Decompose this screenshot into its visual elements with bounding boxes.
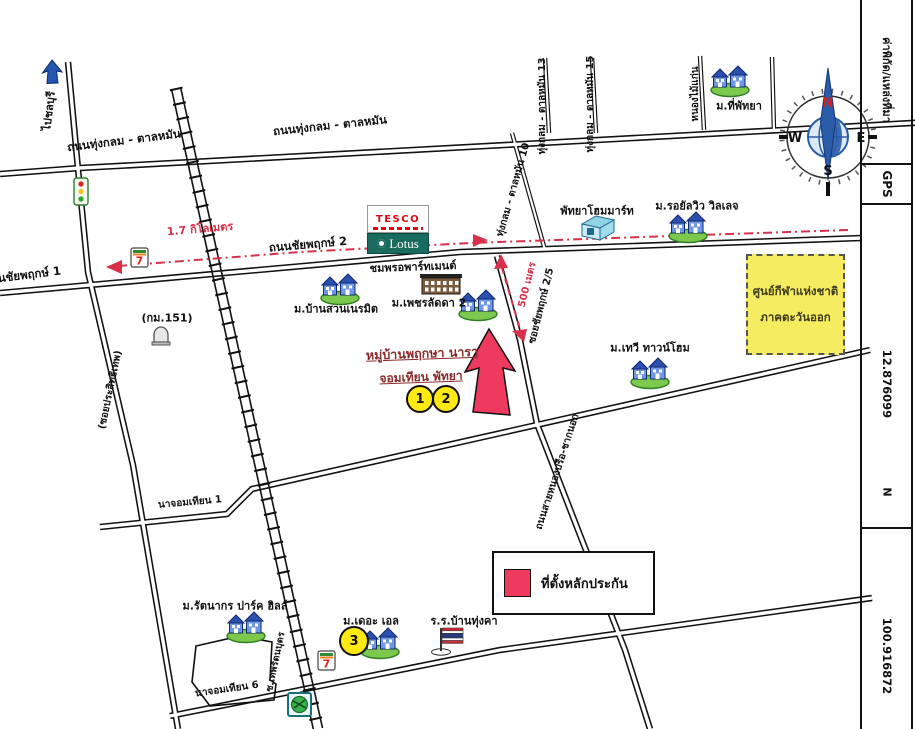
lotus-flower-icon <box>377 239 386 248</box>
tesco-label: TESCO <box>376 214 420 225</box>
compass-south-label: S <box>823 164 832 179</box>
road-label-nong-mai-kaen: หนองไม้แก่น <box>691 66 701 121</box>
road-label-soi-13: ทุ่งกลม - ตาลหมัน 13 <box>538 57 548 154</box>
sport-center-area: ศูนย์กีฬาแห่งชาติ ภาคตะวันออก <box>746 254 845 355</box>
tesco-dashes <box>373 227 423 230</box>
place-label-chomporn-apartment: ชมพรอพาร์ทเมนต์ <box>369 260 456 274</box>
warehouse-icon <box>582 216 614 240</box>
village-houses-icon <box>227 612 265 643</box>
legend-marker-swatch <box>504 569 531 597</box>
market-icon <box>288 693 311 716</box>
compass-west-label: W <box>788 131 802 146</box>
map-page: 7 <box>0 0 915 729</box>
sidebar-latitude: 12.876099 <box>880 350 894 418</box>
seven-eleven-icon <box>131 248 148 268</box>
thai-flag-icon <box>432 628 464 655</box>
monument-icon <box>152 327 170 345</box>
sport-center-line2: ภาคตะวันออก <box>760 309 830 327</box>
marker-circle-2: 2 <box>432 385 460 413</box>
compass-north-label: N <box>823 96 834 111</box>
village-houses-icon <box>669 212 707 243</box>
village-houses-icon <box>631 358 669 389</box>
direction-arrow-chonburi-icon <box>43 60 63 84</box>
route-dashes <box>106 230 848 342</box>
road-label-soi-15: ทุ่งกลม - ตาลหมัน 15 <box>586 55 596 152</box>
sidebar-longitude: 100.916872 <box>880 618 894 694</box>
place-label-royal-view: ม.รอยัลวิว วิลเลจ <box>655 201 738 212</box>
apartment-icon <box>420 274 462 294</box>
place-label-baan-suan-neramit: ม.บ้านสวนเนรมิต <box>294 304 378 315</box>
coordinates-sidebar: ค่าพิกัด/แหล่งที่มา GPS 12.876099 N 100.… <box>860 0 913 729</box>
place-label-rattanakorn-park-hill: ม.รัตนากร ปาร์ค ฮิลล์ <box>182 601 287 612</box>
sidebar-source-label: ค่าพิกัด/แหล่งที่มา <box>878 37 896 123</box>
tesco-sign-bottom: Lotus <box>367 233 429 254</box>
place-label-tavee-townhome: ม.เทวี ทาวน์โฮม <box>610 343 689 354</box>
traffic-light-icon <box>74 178 88 205</box>
place-label-tee-pattaya: ม.ที่พัทยา <box>716 101 762 112</box>
village-houses-icon <box>711 66 749 97</box>
tesco-lotus-sign: TESCO Lotus <box>367 205 429 254</box>
road-label-km-151: (กม.151) <box>141 313 192 324</box>
lotus-label: Lotus <box>389 236 419 252</box>
place-label-the-l: ม.เดอะ เอล <box>343 616 399 627</box>
tesco-sign-top: TESCO <box>367 205 429 233</box>
sidebar-divider <box>862 527 911 529</box>
seven-eleven-icon <box>318 651 335 671</box>
village-houses-icon <box>321 274 359 305</box>
legend-box: ที่ตั้งหลักประกัน <box>492 551 655 615</box>
sport-center-line1: ศูนย์กีฬาแห่งชาติ <box>753 283 839 301</box>
sidebar-lat-hemisphere: N <box>880 487 893 496</box>
place-label-phet-ladda: ม.เพชรลัดดา 2 <box>392 298 467 309</box>
location-arrow <box>465 329 515 415</box>
sidebar-divider <box>862 203 911 205</box>
marker-circle-3: 3 <box>339 626 369 656</box>
place-label-pattaya-homemart: พัทยาโฮมมาร์ท <box>560 206 634 217</box>
sidebar-divider <box>862 163 911 165</box>
place-label-baan-thung-kha-school: ร.ร.บ้านทุ่งคา <box>430 616 497 627</box>
sidebar-source-value: GPS <box>880 170 894 197</box>
legend-marker-label: ที่ตั้งหลักประกัน <box>541 573 628 594</box>
destination-name-line2: จอมเทียน พัทยา <box>379 370 463 385</box>
marker-circle-1: 1 <box>406 385 434 413</box>
